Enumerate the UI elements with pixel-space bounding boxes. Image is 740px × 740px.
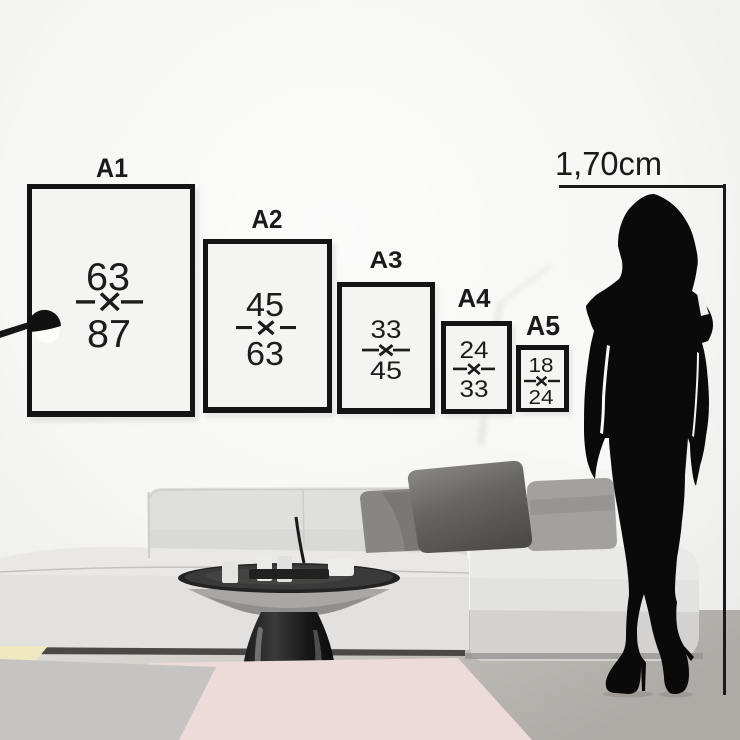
svg-text:33: 33 (371, 316, 402, 344)
svg-text:1,70cm: 1,70cm (555, 145, 662, 182)
svg-text:18: 18 (529, 355, 554, 377)
svg-text:24: 24 (529, 387, 554, 409)
svg-text:87: 87 (87, 313, 131, 356)
svg-text:63: 63 (246, 335, 284, 372)
svg-text:A1: A1 (96, 153, 128, 183)
svg-text:45: 45 (246, 286, 284, 323)
svg-text:A3: A3 (370, 247, 403, 274)
svg-text:A4: A4 (458, 283, 492, 313)
svg-text:63: 63 (86, 256, 130, 299)
svg-text:45: 45 (370, 357, 402, 385)
svg-text:A5: A5 (526, 310, 560, 341)
svg-text:24: 24 (460, 337, 489, 364)
svg-text:33: 33 (460, 376, 489, 403)
svg-text:A2: A2 (252, 204, 283, 234)
